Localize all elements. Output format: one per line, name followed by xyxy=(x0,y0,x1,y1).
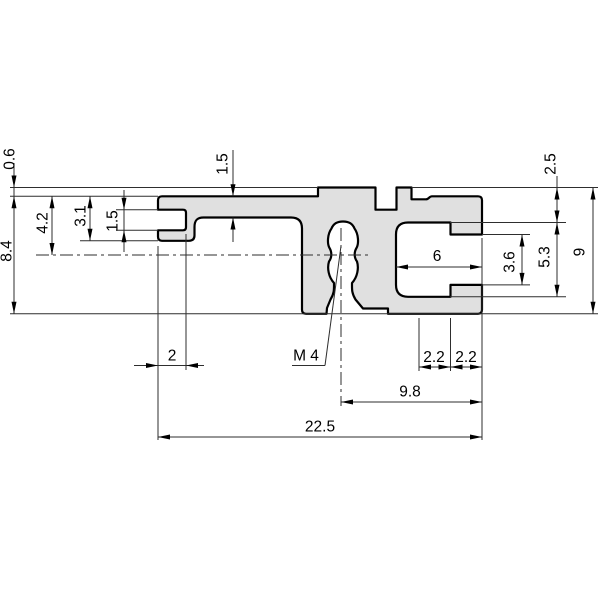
dim-height-below-top: 8.4 xyxy=(0,240,16,262)
dim-total-width: 22.5 xyxy=(305,419,335,436)
dimension-labels: 0.6 8.4 4.2 3.1 1.5 1.5 2 M 4 2.2 2.2 9.… xyxy=(0,148,589,435)
thread-callout-label: M 4 xyxy=(293,348,319,365)
dim-thread-to-face: 9.8 xyxy=(399,384,421,401)
dim-plate-thickness: 1.5 xyxy=(215,153,232,175)
dim-slot-depth: 6 xyxy=(433,248,442,265)
dim-lip-width-b: 2.2 xyxy=(455,349,477,366)
dim-total-height: 9 xyxy=(572,248,589,257)
dim-slot-mouth-height: 3.6 xyxy=(502,251,519,273)
dim-lip-width-a: 2.2 xyxy=(423,349,445,366)
technical-drawing-canvas: 0.6 8.4 4.2 3.1 1.5 1.5 2 M 4 2.2 2.2 9.… xyxy=(0,0,600,600)
dim-slot-inner-height: 5.3 xyxy=(537,246,554,268)
dim-clip-slot-height: 1.5 xyxy=(105,210,122,232)
dim-axis-from-top: 4.2 xyxy=(35,212,52,234)
dim-lip-from-top: 2.5 xyxy=(543,153,560,175)
profile-drawing: 0.6 8.4 4.2 3.1 1.5 1.5 2 M 4 2.2 2.2 9.… xyxy=(0,0,600,600)
dim-top-step: 0.6 xyxy=(2,148,19,170)
dim-clip-slot-depth: 2 xyxy=(168,348,177,365)
dim-clip-height: 3.1 xyxy=(73,205,90,227)
